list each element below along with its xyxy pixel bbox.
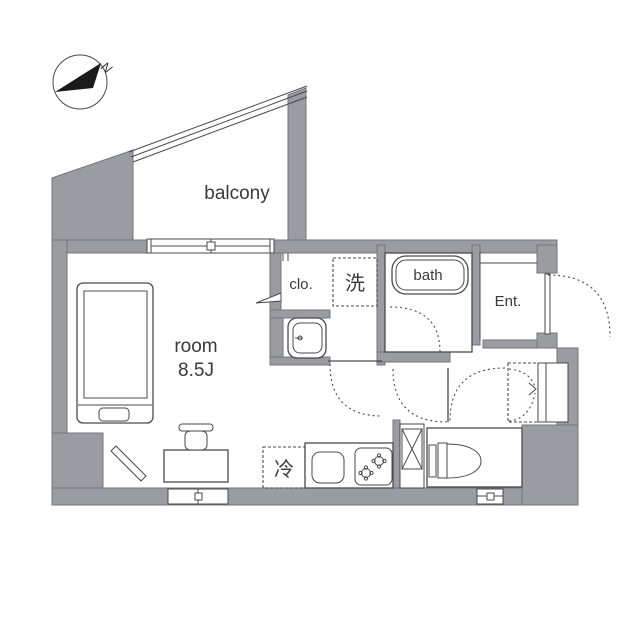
washer-space: 洗	[333, 258, 377, 306]
stove	[355, 448, 392, 485]
bathroom: bath	[385, 253, 472, 352]
toilet-room	[427, 428, 522, 487]
wall-washer-bath	[377, 245, 385, 365]
wall-balcony-right	[288, 88, 306, 240]
chair	[179, 424, 213, 450]
compass: N	[53, 55, 115, 109]
folding-door-arc-bottom	[509, 393, 535, 421]
corridor-door-arc	[393, 369, 447, 422]
room-door-arc	[330, 364, 382, 416]
balcony-railing-line-2	[131, 91, 307, 157]
entry-door-arc	[548, 275, 610, 337]
wall-ent-jamb-bottom	[537, 333, 557, 348]
balcony-railing-line-3	[133, 97, 307, 162]
wall-bath-right	[472, 245, 480, 345]
storage-upper-dashed	[508, 363, 538, 422]
wall-closet-bottom	[270, 310, 330, 318]
wall-band-left-of-window	[67, 240, 147, 253]
pipe-shaft	[400, 424, 424, 488]
floor-plan: balcony room 8.5J	[0, 0, 640, 640]
washer-label: 洗	[345, 272, 365, 295]
wall-ent-bottom-band	[483, 340, 537, 348]
entry-door-leaf	[545, 274, 550, 334]
entrance-label: Ent.	[495, 293, 522, 310]
fridge-label: 冷	[274, 458, 294, 481]
bath-door-arc	[390, 307, 440, 352]
wall-ent-corner-top	[537, 245, 557, 273]
balcony-area: balcony	[129, 86, 307, 261]
kitchen: 冷	[263, 443, 393, 488]
bath-label: bath	[413, 267, 442, 284]
room-size-label: 8.5J	[178, 360, 214, 381]
balcony-railing-line-1	[129, 86, 307, 152]
room-name-label: room	[174, 336, 217, 357]
wall-bath-bottom	[377, 352, 450, 362]
wall-kitchen-shaft	[393, 420, 400, 488]
wall-bottom-left-block	[52, 433, 103, 490]
closet: clo.	[256, 276, 313, 303]
storage-cabinet	[538, 363, 568, 422]
balcony-label: balcony	[204, 183, 270, 204]
window-lock-icon	[207, 242, 215, 250]
compass-n-label: N	[98, 59, 115, 77]
bottom-window-room	[168, 489, 228, 504]
bottom-window-toilet	[477, 489, 503, 504]
pillow	[99, 408, 129, 421]
wall-top-left-wedge	[52, 150, 133, 240]
floor-plan-svg: balcony room 8.5J	[0, 0, 640, 640]
toilet-approach-arc	[450, 368, 505, 421]
closet-label: clo.	[289, 276, 312, 293]
hall-doors	[328, 361, 536, 422]
closet-door-leaf	[256, 293, 281, 303]
kitchen-sink	[312, 452, 344, 483]
wall-top-main	[274, 240, 557, 253]
desk	[164, 450, 228, 482]
wall-closet-left	[270, 253, 281, 318]
balcony-window	[147, 239, 288, 261]
wall-right-bottom-block	[522, 425, 578, 505]
compass-needle-icon	[55, 63, 101, 92]
mirror	[111, 446, 146, 481]
bed	[77, 283, 153, 423]
wash-basin	[288, 318, 326, 358]
